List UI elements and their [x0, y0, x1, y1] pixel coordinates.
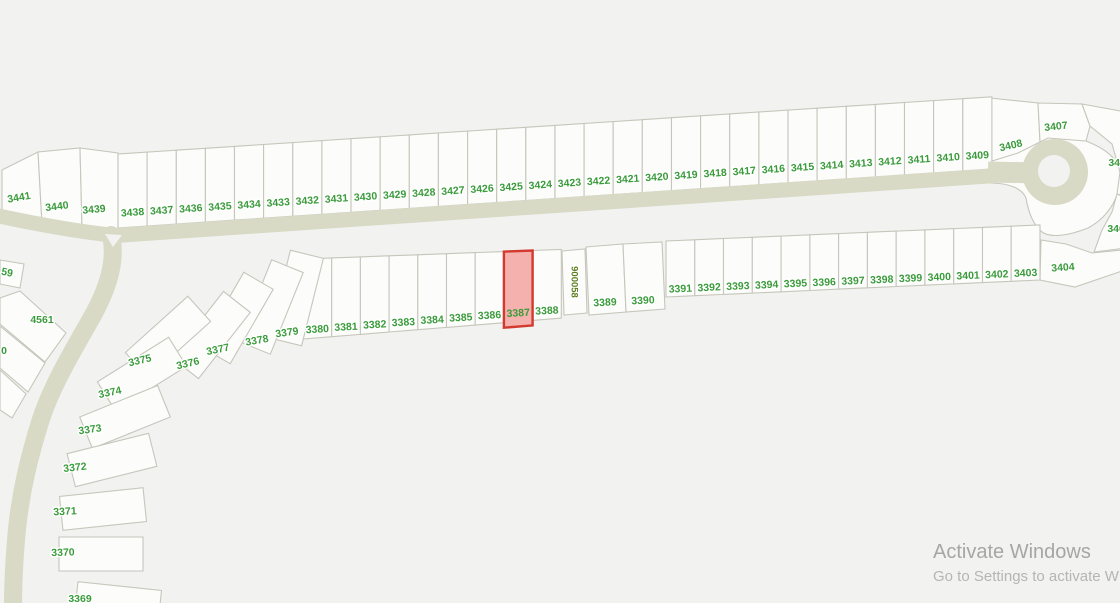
lot-label-3417: 3417 — [732, 165, 756, 179]
lot-label-3370: 3370 — [51, 546, 75, 559]
lot-label-3434: 3434 — [237, 198, 261, 212]
lot-label-3392: 3392 — [697, 281, 721, 294]
lot-label-3403: 3403 — [1014, 267, 1038, 280]
lot-label-3431: 3431 — [324, 192, 348, 206]
subdivision-plat-map-canvas[interactable]: 3441344034393408340734063405340433893390… — [0, 0, 1120, 603]
lot-label-3380: 3380 — [305, 323, 329, 336]
lot-label-3399: 3399 — [899, 272, 923, 285]
lot-label-3407: 3407 — [1044, 120, 1069, 134]
lot-label-3421: 3421 — [616, 173, 640, 187]
lot-label-3382: 3382 — [363, 318, 387, 331]
lot-label-4561: 4561 — [30, 314, 54, 326]
lot-label-3406: 3406 — [1108, 157, 1120, 169]
lot-label-3436: 3436 — [179, 202, 203, 216]
culdesac-island — [1038, 155, 1070, 187]
lot-label-3422: 3422 — [587, 175, 611, 189]
lot-label-3387: 3387 — [506, 307, 530, 320]
lot-label-3429: 3429 — [383, 188, 407, 202]
lot-label-3438: 3438 — [120, 206, 144, 220]
lot-label-3395: 3395 — [784, 277, 808, 290]
lot-label-3432: 3432 — [295, 194, 319, 208]
parcel-map-viewport: 3441344034393408340734063405340433893390… — [0, 0, 1120, 603]
lot-label-3405: 3405 — [1107, 223, 1120, 235]
lot-label-3424: 3424 — [528, 179, 552, 193]
lot-label-3425: 3425 — [499, 180, 523, 194]
lot-label-3439: 3439 — [82, 203, 106, 217]
lot-label-3418: 3418 — [703, 167, 727, 181]
lot-label-3388: 3388 — [535, 304, 559, 317]
lot-label-3426: 3426 — [470, 182, 494, 196]
lot-label-3427: 3427 — [441, 184, 465, 198]
lot-label-3419: 3419 — [674, 169, 698, 183]
lot-label-3412: 3412 — [878, 155, 902, 169]
lot-label-3420: 3420 — [645, 171, 669, 185]
lot-label-3396: 3396 — [812, 276, 836, 289]
lot-label-3435: 3435 — [208, 200, 232, 214]
lot-label-3410: 3410 — [936, 151, 960, 165]
lot-label-3402: 3402 — [985, 268, 1009, 281]
lot-label-3411: 3411 — [907, 153, 931, 167]
lot-label-3416: 3416 — [761, 163, 785, 177]
lot-label-3393: 3393 — [726, 280, 750, 293]
lot-label-3385: 3385 — [449, 311, 473, 324]
lot-label-900058: 900058 — [568, 266, 579, 298]
lot-label-3389: 3389 — [593, 296, 617, 309]
lot-label-3390: 3390 — [631, 294, 655, 307]
lot-label-3391: 3391 — [668, 283, 692, 296]
lot-label-3413: 3413 — [849, 157, 873, 171]
lot-label-3369: 3369 — [68, 593, 92, 603]
lot-label-3415: 3415 — [790, 161, 814, 175]
lot-label-3384: 3384 — [420, 314, 444, 327]
lot-label-3404: 3404 — [1051, 261, 1075, 275]
lot-label-3401: 3401 — [956, 270, 980, 283]
lot-label-3409: 3409 — [965, 149, 989, 163]
lot-label-3437: 3437 — [150, 204, 174, 218]
lot-label-3371: 3371 — [53, 505, 77, 518]
lot-label-3381: 3381 — [334, 321, 358, 334]
lot-label-3423: 3423 — [557, 177, 581, 191]
lot-label-4560: 0 — [1, 345, 7, 357]
lot-label-3372: 3372 — [63, 461, 88, 475]
lot-label-3386: 3386 — [478, 309, 502, 322]
lot-label-3428: 3428 — [412, 186, 436, 200]
lot-label-3398: 3398 — [870, 273, 894, 286]
lot-label-3383: 3383 — [391, 316, 415, 329]
lot-label-3430: 3430 — [354, 190, 378, 204]
lot-3440[interactable] — [38, 148, 82, 228]
lot-label-3414: 3414 — [820, 159, 844, 173]
lot-label-3397: 3397 — [841, 275, 865, 288]
lot-3439[interactable] — [80, 148, 118, 229]
lot-label-3433: 3433 — [266, 196, 290, 210]
lot-label-3394: 3394 — [755, 279, 779, 292]
lot-label-3400: 3400 — [927, 271, 951, 284]
